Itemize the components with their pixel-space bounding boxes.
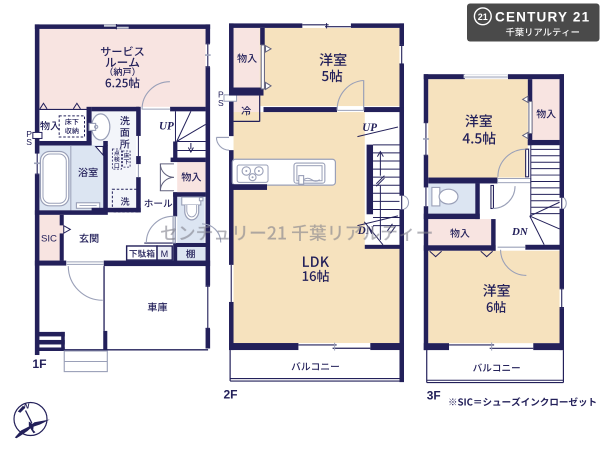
svg-text:S: S <box>218 98 224 108</box>
svg-text:UP: UP <box>362 122 377 134</box>
svg-text:S: S <box>26 137 32 147</box>
svg-text:2F: 2F <box>223 387 237 401</box>
svg-text:DN: DN <box>511 226 529 238</box>
svg-text:SIC: SIC <box>41 233 57 244</box>
svg-text:M: M <box>161 249 169 259</box>
svg-text:UP: UP <box>159 120 174 132</box>
svg-text:N: N <box>24 402 30 411</box>
svg-text:21: 21 <box>478 12 488 22</box>
svg-text:CENTURY 21: CENTURY 21 <box>495 10 590 25</box>
svg-text:3F: 3F <box>427 389 441 403</box>
svg-text:1F: 1F <box>32 357 46 371</box>
